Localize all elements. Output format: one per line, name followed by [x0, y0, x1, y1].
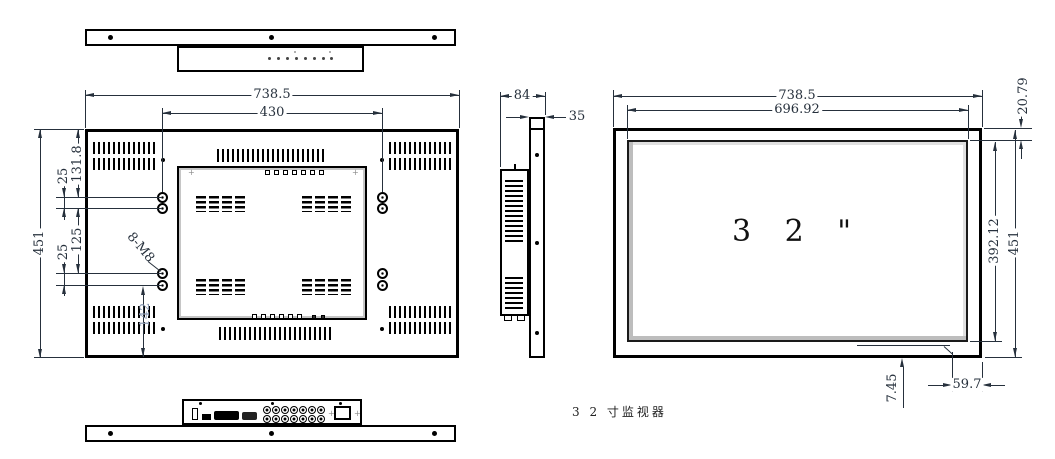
- mounting-hole: [377, 192, 388, 203]
- screw-dot: [339, 402, 342, 405]
- panel-vent-square: [301, 170, 306, 175]
- panel-vent-square: [270, 314, 275, 319]
- dim-arrow: [38, 349, 42, 358]
- side-vent-grille: [505, 277, 523, 309]
- drawing-caption: 3 2 寸监视器: [572, 403, 667, 420]
- dim-arrow: [900, 358, 904, 367]
- panel-vent-square: [283, 170, 288, 175]
- dim-pitch-top: 25: [57, 166, 71, 187]
- dim-edge-to-hole-top: 131.8: [71, 143, 85, 184]
- dim-arrow: [993, 142, 997, 151]
- dim-arrow: [141, 286, 145, 295]
- vga-connector: [242, 412, 257, 420]
- ext-line: [382, 108, 383, 192]
- power-switch: [202, 414, 211, 420]
- mounting-hole: [377, 280, 388, 291]
- dim-pitch-bottom: 25: [57, 242, 71, 263]
- screw-dot: [161, 327, 165, 331]
- panel-vent-square: [288, 314, 293, 319]
- screw-dot: [199, 402, 202, 405]
- ext-line: [982, 90, 983, 127]
- connector-dot: [304, 57, 307, 60]
- bnc-connector: [263, 406, 271, 414]
- screw-dot: [432, 35, 437, 40]
- connector-dot: [286, 57, 289, 60]
- dim-line: [506, 117, 520, 118]
- dim-arrow: [76, 129, 80, 138]
- dim-arrow: [536, 94, 545, 98]
- bnc-connector: [290, 415, 298, 423]
- dim-arrow: [1013, 130, 1017, 139]
- panel-slot-group: [196, 196, 245, 212]
- panel-vent-square: [297, 314, 302, 319]
- dim-arrow: [973, 94, 982, 98]
- dvi-connector: [214, 411, 239, 420]
- dim-arrow: [500, 94, 509, 98]
- dim-arrow: [959, 108, 968, 112]
- connector-dot: [322, 57, 325, 60]
- ext-line: [56, 208, 162, 209]
- side-tick: [514, 164, 516, 169]
- bnc-connector: [263, 415, 271, 423]
- screw-dot: [432, 431, 437, 436]
- dim-arrow: [76, 208, 80, 217]
- ext-line: [984, 128, 1032, 129]
- panel-vent-square: [274, 170, 279, 175]
- usb-port: [192, 408, 198, 420]
- bnc-connector: [299, 415, 307, 423]
- dim-arrow: [450, 93, 459, 97]
- connector-dot: [277, 57, 280, 60]
- dim-top-margin: 20.79: [1017, 75, 1031, 116]
- dim-arrow: [1019, 140, 1023, 149]
- dim-line: [991, 385, 1005, 386]
- screw-dot: [269, 35, 274, 40]
- bnc-connector: [317, 415, 325, 423]
- dim-edge-to-hole-bottom: 142: [139, 301, 153, 330]
- panel-vent-square: [310, 170, 315, 175]
- ext-line: [500, 92, 501, 167]
- bnc-connector: [272, 406, 280, 414]
- bnc-connector: [308, 406, 316, 414]
- ext-line: [56, 197, 162, 198]
- ext-line: [545, 92, 546, 115]
- dim-span-mid: 125: [71, 226, 85, 255]
- dim-arrow: [76, 188, 80, 197]
- dim-arrow: [520, 115, 529, 119]
- bnc-connector: [308, 415, 316, 423]
- ext-line: [985, 357, 1022, 358]
- dim-arrow: [545, 115, 554, 119]
- dim-arrow: [62, 188, 66, 197]
- ext-line: [857, 345, 950, 346]
- ext-line: [970, 341, 1002, 342]
- connector-dot: [268, 57, 271, 60]
- technical-drawing-sheet: + +: [0, 0, 1055, 459]
- screw-dot: [535, 241, 539, 245]
- dim-bottom-margin: 7.45: [886, 372, 900, 405]
- dim-arrow: [38, 129, 42, 138]
- dim-line: [903, 367, 904, 408]
- registration-mark: +: [354, 410, 361, 418]
- screw-dot: [380, 327, 384, 331]
- dim-arrow: [85, 93, 94, 97]
- panel-vent-square: [279, 314, 284, 319]
- ext-line: [968, 105, 969, 139]
- dim-line: [554, 117, 566, 118]
- dim-arrow: [1019, 119, 1023, 128]
- dim-depth: 84: [512, 89, 533, 103]
- screw-dot: [535, 153, 539, 157]
- vent-grille: [219, 327, 333, 340]
- bnc-connector: [299, 406, 307, 414]
- panel-vent-square: [292, 170, 297, 175]
- connector-dot: [313, 57, 316, 60]
- dim-line: [1021, 149, 1022, 159]
- dim-arrow: [993, 332, 997, 341]
- ext-line: [162, 108, 163, 192]
- ext-line: [459, 90, 460, 128]
- dim-arrow: [76, 264, 80, 273]
- panel-slot-group: [196, 279, 245, 295]
- screen-size-label: 3 2 ": [627, 214, 968, 249]
- bnc-connector: [281, 406, 289, 414]
- bnc-connector: [281, 415, 289, 423]
- connector-dot: [329, 51, 331, 53]
- screw-dot: [108, 35, 113, 40]
- registration-mark: +: [188, 169, 195, 177]
- bnc-connector: [317, 406, 325, 414]
- panel-vent-square: [252, 314, 257, 319]
- vent-grille: [93, 142, 155, 154]
- dim-arrow: [627, 108, 636, 112]
- vent-grille: [93, 158, 155, 170]
- dim-arrow: [373, 111, 382, 115]
- dim-arrow: [62, 264, 66, 273]
- dim-arrow: [162, 111, 171, 115]
- dim-mount-span: 430: [258, 106, 287, 120]
- dim-screen-height: 392.12: [988, 216, 1002, 266]
- bnc-connector: [290, 406, 298, 414]
- screw-dot: [271, 402, 274, 405]
- dim-screen-width: 696.92: [772, 103, 822, 117]
- screw-dot: [535, 331, 539, 335]
- side-foot: [517, 315, 525, 321]
- screw-dot: [269, 431, 274, 436]
- connector-dot: [330, 57, 333, 60]
- ext-line: [56, 285, 162, 286]
- panel-vent-square: [321, 315, 325, 319]
- dim-arrow: [62, 208, 66, 217]
- connector-dot: [295, 57, 298, 60]
- vent-grille: [389, 158, 451, 170]
- panel-vent-square: [265, 170, 270, 175]
- side-vent-grille: [505, 180, 523, 242]
- ext-line: [56, 273, 162, 274]
- panel-vent-square: [312, 315, 316, 319]
- vent-grille: [389, 142, 451, 154]
- dim-arrow: [1013, 348, 1017, 357]
- back-inner-panel: [177, 166, 367, 320]
- dim-bezel-depth: 35: [567, 110, 588, 124]
- panel-vent-square: [261, 314, 266, 319]
- dim-arrow: [141, 348, 145, 357]
- dim-line: [928, 385, 943, 386]
- screw-dot: [108, 431, 113, 436]
- dim-arrow: [613, 94, 622, 98]
- mounting-hole: [377, 203, 388, 214]
- dim-side-offset: 59.7: [951, 378, 984, 392]
- dim-arrow: [62, 285, 66, 294]
- panel-slot-group: [302, 279, 351, 295]
- vent-grille: [389, 306, 451, 318]
- dim-back-height: 451: [33, 229, 47, 258]
- panel-vent-square: [319, 170, 324, 175]
- vent-grille: [217, 149, 327, 162]
- bnc-connector: [272, 415, 280, 423]
- vent-grille: [389, 322, 451, 334]
- power-inlet: [334, 406, 351, 420]
- side-bezel-step: [529, 128, 545, 130]
- registration-mark: +: [352, 169, 359, 177]
- dim-front-height: 451: [1008, 229, 1022, 258]
- dim-back-width: 738.5: [251, 88, 292, 102]
- mounting-hole: [377, 268, 388, 279]
- connector-dot: [294, 51, 296, 53]
- side-foot: [504, 315, 512, 321]
- panel-slot-group: [302, 196, 351, 212]
